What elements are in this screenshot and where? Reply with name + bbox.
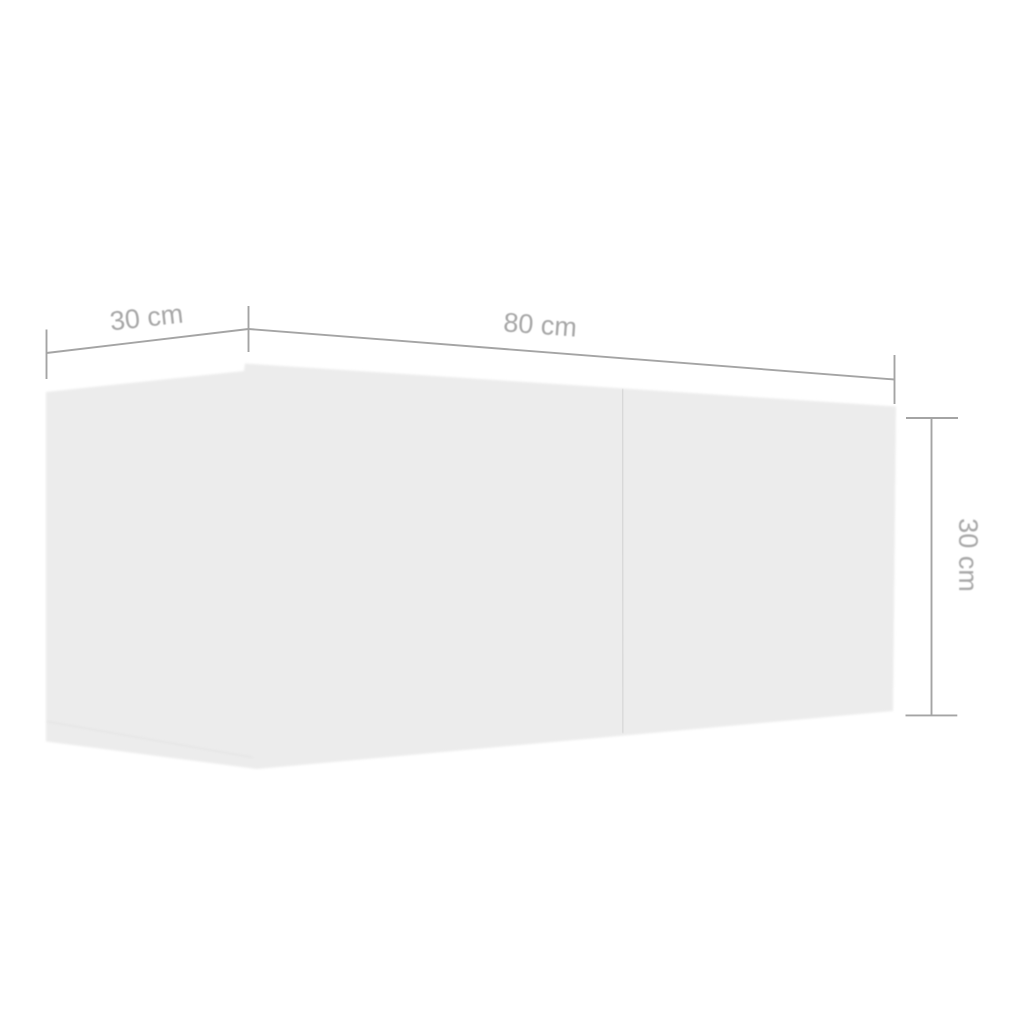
svg-text:30 cm: 30 cm (108, 299, 184, 337)
svg-text:80 cm: 80 cm (502, 307, 578, 342)
svg-text:30 cm: 30 cm (953, 518, 983, 592)
